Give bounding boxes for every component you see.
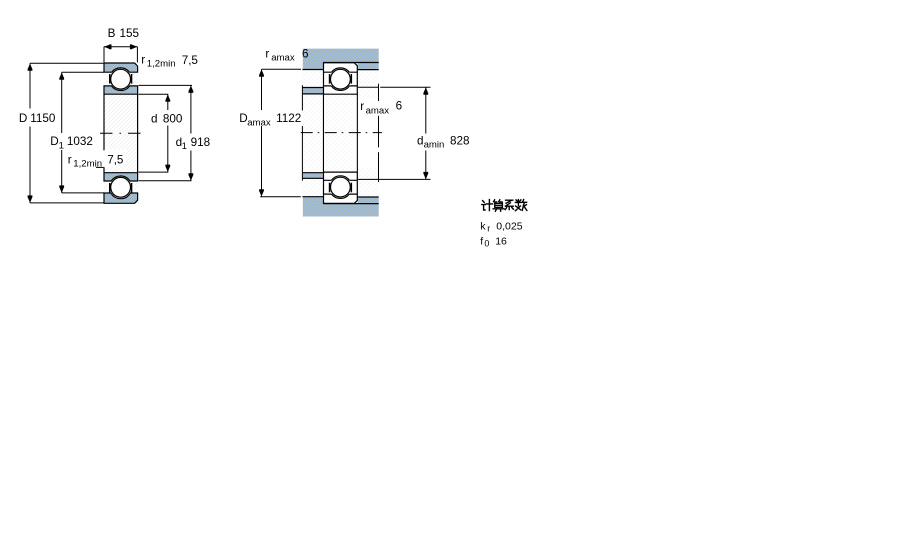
svg-text:r: r [68,154,72,167]
svg-text:828: 828 [450,135,470,148]
svg-text:6: 6 [302,47,309,60]
svg-text:f: f [480,235,483,247]
svg-text:k: k [480,220,486,232]
svg-text:amin: amin [424,140,445,151]
svg-text:0,025: 0,025 [496,220,522,232]
svg-text:amax: amax [271,52,295,63]
svg-text:1,2min: 1,2min [73,159,102,170]
svg-text:r: r [360,100,364,113]
svg-text:1: 1 [182,141,187,152]
svg-text:0: 0 [484,238,489,248]
svg-text:1032: 1032 [67,135,93,148]
svg-text:r: r [265,47,269,60]
svg-text:1,2min: 1,2min [147,59,176,70]
svg-text:7,5: 7,5 [107,154,124,167]
svg-text:1150: 1150 [30,112,56,125]
svg-text:D: D [19,112,27,125]
svg-text:6: 6 [396,100,403,113]
svg-text:1122: 1122 [276,112,301,125]
svg-text:r: r [141,53,145,66]
svg-text:B: B [108,27,116,40]
svg-text:amax: amax [247,117,271,128]
svg-text:1: 1 [59,141,64,152]
svg-text:amax: amax [366,105,390,116]
svg-text:16: 16 [495,235,507,247]
svg-text:D: D [50,135,58,148]
svg-text:d: d [151,112,158,125]
svg-text:7,5: 7,5 [182,54,199,67]
svg-text:800: 800 [163,112,183,125]
svg-text:918: 918 [191,136,211,149]
svg-text:d: d [417,135,424,148]
svg-text:155: 155 [120,27,140,40]
svg-text:r: r [487,224,490,234]
